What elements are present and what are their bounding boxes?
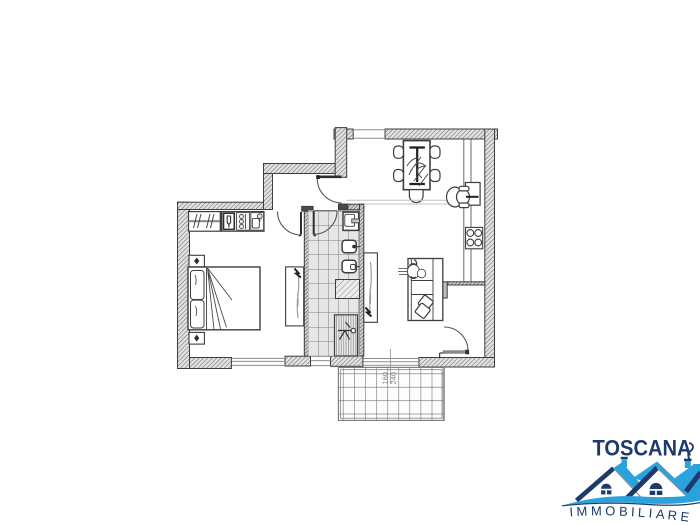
svg-text:TOSCANA: TOSCANA: [593, 435, 692, 460]
svg-text:240: 240: [389, 372, 398, 385]
